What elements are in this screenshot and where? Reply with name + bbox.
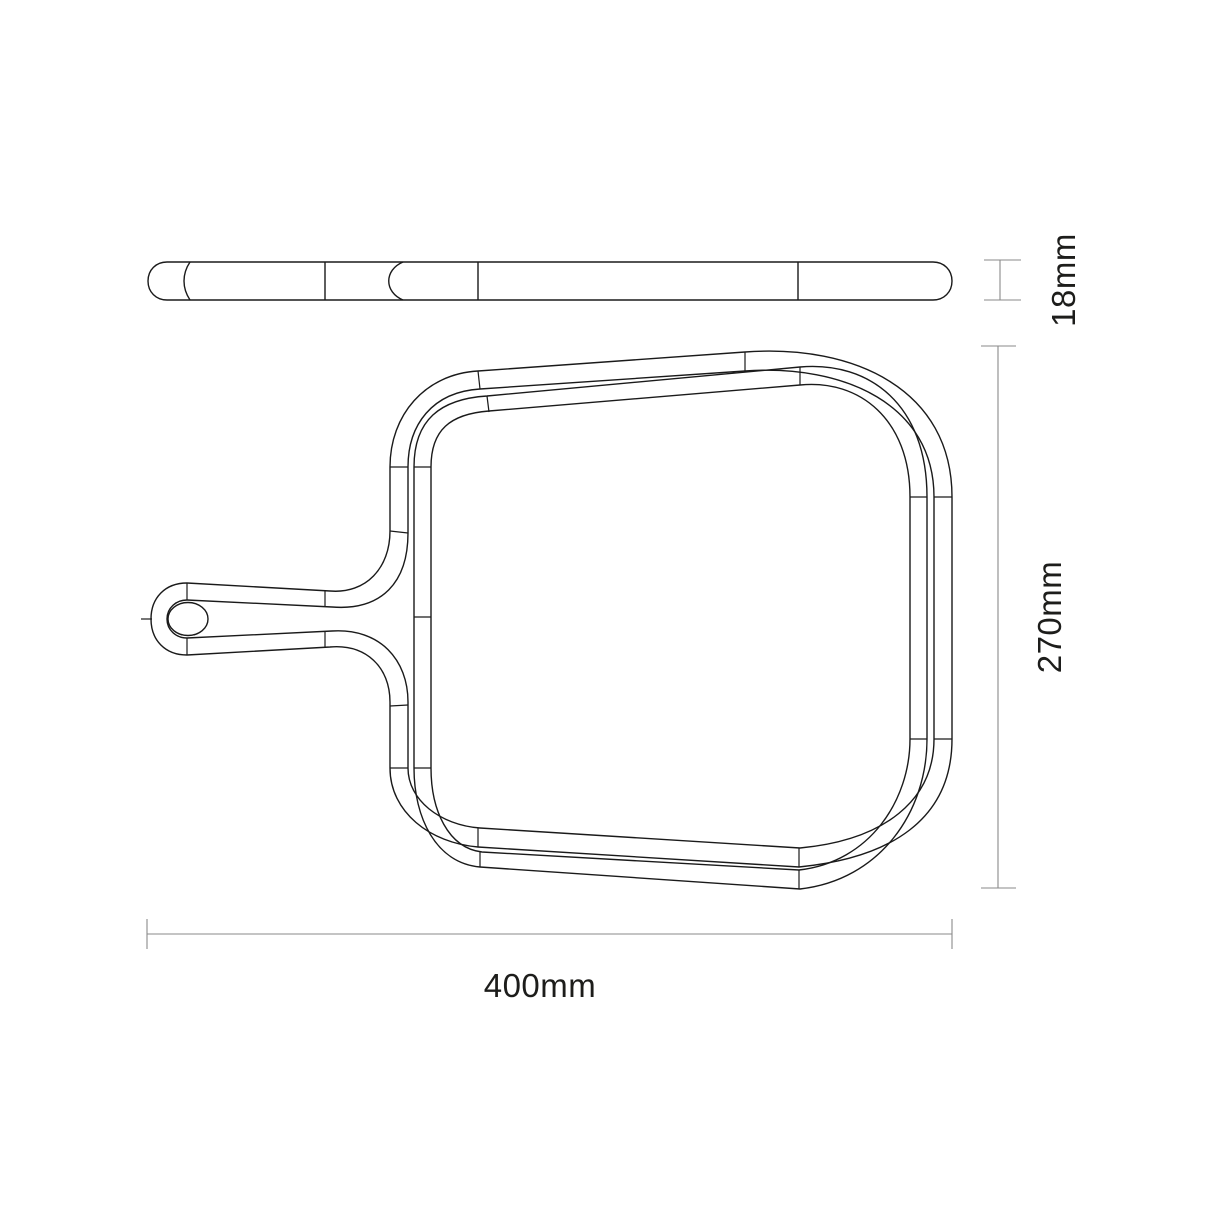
depth-dimension-label: 270mm [1031,561,1069,674]
pole-hole [168,603,208,636]
handle-socket [151,531,408,702]
dimension-depth-270mm [981,346,1016,888]
width-dimension-label: 400mm [484,967,597,1005]
technical-drawing-canvas: 18mm 270mm 400mm [0,0,1214,1214]
dimension-width-400mm [147,919,952,949]
segment-joint-ticks [141,352,952,889]
top-plan-view [141,351,952,889]
front-ring [390,351,952,867]
dimension-thickness-18mm [984,260,1021,300]
thickness-dimension-label: 18mm [1045,233,1083,327]
back-ring [414,366,927,889]
side-profile-view [148,262,952,300]
